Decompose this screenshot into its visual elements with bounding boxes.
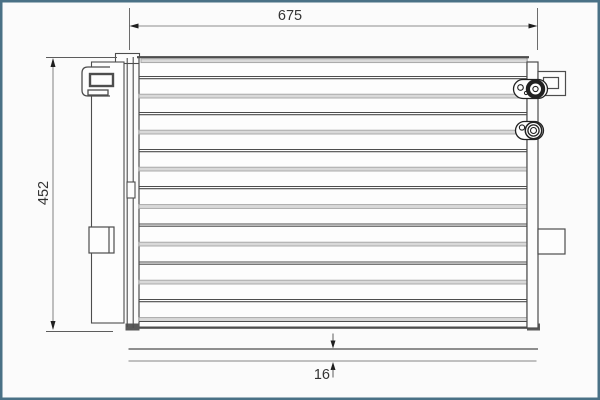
mounting-bracket-bottom-left [89,227,114,253]
depth-dimension: 16 [314,334,336,384]
width-dimension: 675 [130,8,538,50]
receiver-drier [92,57,136,328]
arrowhead-left [130,24,139,29]
right-header-tank [527,62,538,328]
arrowhead-down [331,341,336,349]
arrowhead-top [51,58,56,67]
condenser-side-view [129,349,539,361]
arrowhead-bottom [51,321,56,330]
outlet-port-fitting [516,122,544,140]
arrowhead-up [331,362,336,370]
header-clip-tab [127,182,135,198]
technical-drawing-page: 675 452 16 [0,0,600,400]
condenser-diagram: 675 452 16 [0,0,600,400]
width-dimension-label: 675 [278,8,302,24]
condenser-front-view [82,54,566,331]
mounting-bracket-bottom-right [538,229,565,254]
height-dimension-label: 452 [36,181,52,205]
mounting-bracket-top-left [82,67,113,96]
arrowhead-right [529,24,538,29]
inlet-port-fitting [514,80,548,99]
depth-dimension-label: 16 [314,367,330,383]
